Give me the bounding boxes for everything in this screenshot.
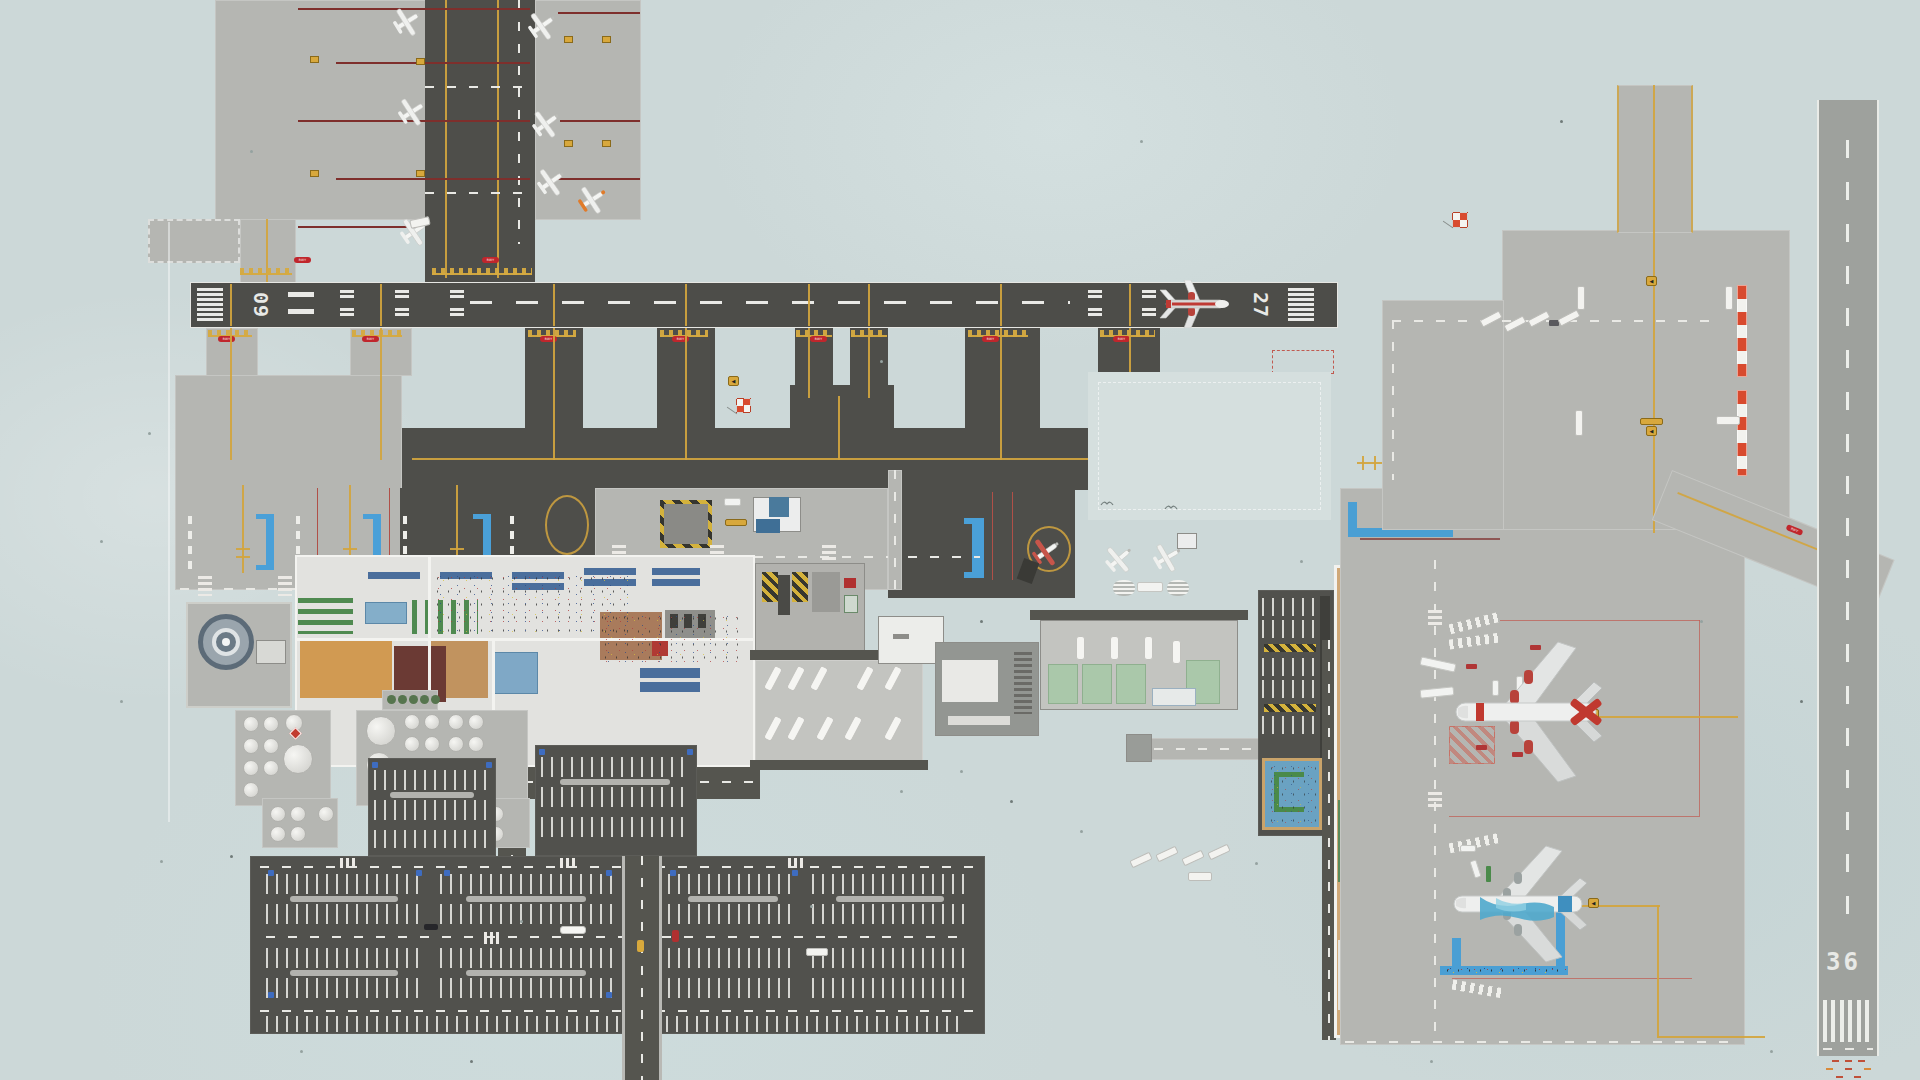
parking-stalls [266,904,422,924]
service-road-dashes [518,0,520,244]
crosswalk [1428,792,1442,810]
truck[interactable] [1207,844,1230,861]
approach-light [1845,1068,1852,1070]
stand-distance-bar [236,548,250,550]
deicing-edge-line [992,492,993,580]
jet-bridge[interactable] [266,516,274,570]
parking-median [290,970,398,976]
accessible-spot [606,992,612,998]
checkin-desks [652,579,700,586]
parking-stalls [812,978,968,998]
red-white-edge-markers [1737,285,1747,377]
security-hazard-strip [792,572,808,602]
runway-threshold-stripes [1823,1000,1873,1042]
fuel-tank [243,738,259,754]
checkin-desks [652,568,700,575]
shelter-hazard-strip [1264,704,1316,712]
passenger-crowd [600,612,740,668]
hold-short-marking [432,268,532,275]
tdz-bars [395,308,409,317]
gas-tank [387,695,396,704]
ga-parking-loop [545,495,589,555]
windsock-northeast[interactable] [1452,212,1468,228]
deicing-gantry[interactable] [972,520,984,578]
taxi-line [380,328,382,460]
tdz-bars [1142,308,1156,317]
bus-bay [1082,664,1112,704]
walking-path [1348,502,1357,537]
fuel-tank [424,714,440,730]
parking-stalls [266,948,422,968]
fuel-tank [448,736,464,752]
parking-stalls [374,830,490,848]
lot-perimeter-road [260,1010,976,1012]
crosswalk [788,858,804,868]
stand-side-bars [188,516,192,570]
parking-stalls [668,978,798,998]
stand-boundary [1449,816,1699,817]
stand-tow-line [336,178,530,180]
bird [1100,492,1114,511]
runway-centerline [470,301,1070,304]
fuel-tank [424,736,440,752]
parking-median [560,779,670,785]
bench-rows [298,598,353,634]
parking-stalls [541,757,691,777]
car[interactable] [637,940,644,952]
parking-median [688,896,778,902]
service-road-dashes [1345,1041,1737,1043]
taxi-line-crossing [868,284,870,326]
gas-tank [409,695,418,704]
parking-stalls [812,874,968,894]
gate-benches [640,668,700,678]
fuel-tank [243,760,259,776]
fuel-tank [270,806,286,822]
taxi-line-crossing [1000,284,1002,326]
runway-threshold-stripes [197,288,223,323]
truck[interactable] [1575,410,1583,436]
runway-threshold-stripes [1288,288,1314,323]
accessible-spot [539,749,545,755]
taxi-sign[interactable] [310,56,319,63]
parking-stalls [541,817,691,837]
waiting-room [1152,688,1196,706]
taxi-line [838,396,840,460]
accessible-spot [268,870,274,876]
hold-short-sign[interactable]: RWY AHEAD [294,257,311,263]
parking-median [390,792,474,798]
fuel-tank [404,714,420,730]
lot-middle-road [266,936,966,938]
stand-tow-line [558,12,640,14]
taxi-line [868,328,870,398]
taxi-line [230,328,232,460]
reserved-zone-outline [1272,350,1334,374]
stand-boundary [1500,620,1700,621]
runway-centerline [1846,140,1849,930]
truck[interactable] [806,948,828,956]
shelter-hazard-strip [1264,644,1316,652]
taxi-line-crossing [808,284,810,326]
parking-stalls [266,1016,966,1032]
approach-light [1864,1068,1871,1070]
apron-hut-roof [769,497,789,517]
cargo-apron-west[interactable] [1382,300,1504,530]
approach-light [1832,1060,1839,1062]
hold-short-marking [240,268,292,275]
crosswalk [278,576,292,596]
taxi-line [445,0,447,278]
accessible-spot [416,870,422,876]
parking-stalls [1262,598,1316,616]
fuel-tank [290,826,306,842]
parking-stalls [266,978,422,998]
blue-container[interactable] [756,519,780,533]
tdz-bars [1142,290,1156,299]
accessible-spot [486,762,492,768]
depot-road[interactable] [1030,610,1248,620]
parking-stalls [1262,680,1316,698]
parking-stalls [374,800,490,820]
truck[interactable] [1155,846,1178,863]
jet-bridge-arm [256,514,274,519]
road-gatehouse[interactable] [1126,734,1152,762]
fuel-tank [468,736,484,752]
taxi-line [1657,1036,1765,1038]
hold-short-sign[interactable]: RWY AHEAD [810,336,827,342]
parking-stalls [440,948,612,968]
taxi-line-crossing [1129,284,1131,326]
hold-short-sign[interactable]: RWY AHEAD [482,257,499,263]
road-dashes [1328,640,1330,1040]
hay-coil [1167,580,1189,596]
parking-median [836,896,944,902]
taxi-line [553,328,555,460]
parking-median [466,896,586,902]
security-hazard-strip [762,572,778,602]
runway-end-dashes [1823,1048,1873,1050]
hold-short-sign[interactable]: RWY AHEAD [218,336,235,342]
passenger-crowd [1266,762,1318,826]
building-door [893,634,909,639]
tdz-bars [1088,290,1102,299]
parking-stalls [374,770,490,790]
truck[interactable] [1577,286,1585,310]
windsock-central[interactable] [736,398,751,413]
security-machines [812,572,840,612]
crosswalk [198,576,212,596]
taxi-line-crossing [230,284,232,326]
runway-connector-merge[interactable] [790,385,894,433]
widebody-aircraft-red[interactable] [1446,632,1610,796]
tdz-bars [395,290,409,299]
approach-light [1858,1060,1865,1062]
fuel-tank-large [283,744,313,774]
stand-tow-line [560,120,640,122]
hold-short-sign[interactable]: RWY AHEAD [1113,336,1130,342]
taxiway-centerline [412,458,1175,460]
accessible-spot [670,870,676,876]
taxi-sign[interactable]: ◀ [728,376,739,386]
stand-distance-bar [1374,456,1376,470]
fuel-tank [243,716,259,732]
radar-center [222,638,230,646]
taxi-sign[interactable] [602,36,611,43]
runway-number-36: 36 [1826,948,1861,976]
tdz-bars [1088,308,1102,317]
fuel-tank [468,714,484,730]
stand-tow-line [336,62,530,64]
cargo-apron[interactable] [1502,230,1790,530]
accessible-spot [372,762,378,768]
service-road-dashes [1392,320,1394,480]
building-detail [948,716,1010,725]
parking-stalls [668,904,798,924]
bus[interactable] [560,926,586,934]
deicing-edge-line [1012,492,1013,580]
accessible-spot [444,870,450,876]
parking-median [466,970,586,976]
stand-distance-bar [1362,456,1364,470]
bus[interactable] [1110,636,1119,660]
gas-tank [420,695,429,704]
parking-stalls [440,874,612,894]
bus[interactable] [1144,636,1153,660]
truck[interactable] [1716,416,1740,425]
fuel-tank [263,738,279,754]
tdz-bars [450,290,464,299]
checkin-desks [368,572,420,579]
service-van[interactable] [724,498,741,506]
yard-road[interactable] [750,760,928,770]
fuel-tank [448,714,464,730]
security-red-box [844,578,856,588]
truck[interactable] [1188,872,1212,881]
fuel-tank-large [366,716,396,746]
ga-aircraft[interactable] [1097,534,1146,583]
gate-benches [640,682,700,692]
gas-tank [398,695,407,704]
runway-number-27: 27 [1249,292,1273,318]
accessible-spot [687,749,693,755]
parking-stalls [668,874,798,894]
fuel-tank [290,806,306,822]
taxi-line [1657,905,1659,1038]
truck[interactable] [1181,850,1204,867]
service-road-dashes [425,86,535,88]
fuel-tank [263,716,279,732]
airliner-on-runway[interactable] [1158,280,1234,332]
building-vents [1014,652,1032,714]
parking-stalls [1262,716,1316,734]
taxi-sign[interactable]: ◀ [1646,426,1657,436]
taxi-sign[interactable] [416,170,425,177]
parking-stalls [440,904,612,924]
aiming-bar [288,309,314,314]
stand-boundary [1699,620,1700,817]
jet-bridge-arm [473,514,491,519]
approach-light [1836,1076,1843,1078]
car[interactable] [424,924,438,930]
airport-map[interactable]: 09 27 RWY AHEAD RWY AHEAD RWY AHEAD [0,0,1920,1080]
parking-median [290,896,398,902]
building-interior [942,660,998,702]
red-white-edge-markers [1737,390,1747,476]
fountain-pool [494,652,538,694]
widebody-aircraft-blue[interactable] [1446,840,1596,972]
car[interactable] [672,930,679,942]
stand-boundary [1452,978,1692,979]
bus[interactable] [1172,640,1181,664]
taxi-line [808,328,810,398]
status-board [844,595,858,613]
runway-connector[interactable] [965,328,1040,430]
hazard-pad[interactable] [660,500,712,548]
bird [1164,496,1178,515]
taxi-line [1000,328,1002,460]
taxi-sign[interactable]: ◀ [1646,276,1657,286]
taxi-sign[interactable] [564,36,573,43]
jet-bridge-arm [256,565,274,570]
parking-stalls [541,787,691,807]
field-van[interactable] [1137,582,1163,592]
parking-stalls [266,874,422,894]
road-dashes [641,856,643,1080]
taxi-line-crossing [685,284,687,326]
crosswalk [484,932,500,944]
truck[interactable] [1725,286,1733,310]
parking-stalls [812,948,968,968]
fuel-tank [270,826,286,842]
taxi-line-crossing [553,284,555,326]
shop-floor [300,640,392,698]
hold-short-sign[interactable]: RWY AHEAD [982,336,999,342]
nw-loop-road[interactable] [148,219,240,263]
hay-coil [1113,580,1135,596]
tdz-bars [450,308,464,317]
truck[interactable] [1129,852,1152,869]
aiming-bar [288,292,314,297]
taxi-sign[interactable] [564,140,573,147]
tdz-bars [340,308,354,317]
queue-pool [365,602,407,624]
taxi-sign-bar[interactable] [725,519,747,526]
runway-number-09: 09 [249,292,273,318]
jet-bridge-arm [363,514,381,519]
field-shed[interactable] [1177,533,1197,549]
radar-building[interactable] [256,640,286,664]
taxi-line [1653,85,1655,533]
fuel-tank [318,806,334,822]
approach-light [1845,1060,1852,1062]
security-scanner [778,575,790,615]
crosswalk [340,858,356,868]
crosswalk [560,858,576,868]
airport-boundary-line [168,222,170,822]
taxi-sign[interactable] [416,58,425,65]
accessible-spot [268,992,274,998]
vertical-taxiway[interactable] [1617,85,1693,233]
approach-light [1854,1076,1861,1078]
parking-stalls [1262,658,1316,676]
bus-bay [1048,664,1078,704]
taxi-line-crossing [380,284,382,326]
parking-stalls [440,978,612,998]
deicing-gantry-arm [964,572,984,578]
taxi-line [685,328,687,460]
road-dashes [1154,748,1258,750]
tdz-bars [340,290,354,299]
bus[interactable] [1076,636,1085,660]
crosswalk [1428,610,1442,628]
hold-short-sign[interactable]: RWY AHEAD [362,336,379,342]
sidewalk [659,856,662,1080]
deicing-gantry-arm [964,518,984,524]
stand-distance-bar [343,548,357,550]
lot-perimeter-road [260,866,976,868]
approach-light [1826,1068,1833,1070]
accessible-spot [792,870,798,876]
service-road-dashes [894,470,896,590]
fuel-tank [243,782,259,798]
taxi-sign-bar[interactable] [1640,418,1663,425]
parking-stalls [1262,620,1316,638]
bus-bay [1116,664,1146,704]
stand-edge-line [1360,538,1500,540]
service-road-dashes [425,192,535,194]
parking-stalls [812,904,968,924]
parking-stalls [668,948,798,968]
taxi-sign[interactable] [602,140,611,147]
accessible-spot [606,870,612,876]
taxi-sign[interactable] [310,170,319,177]
fuel-tank [263,760,279,776]
stand-distance-bar [450,548,464,550]
field-inner-outline [1098,382,1321,510]
gas-tank [431,695,440,704]
taxi-line [497,0,499,278]
stand-lead-in-line [242,485,244,573]
fuel-tank [404,736,420,752]
stand-distance-bar [236,556,250,558]
